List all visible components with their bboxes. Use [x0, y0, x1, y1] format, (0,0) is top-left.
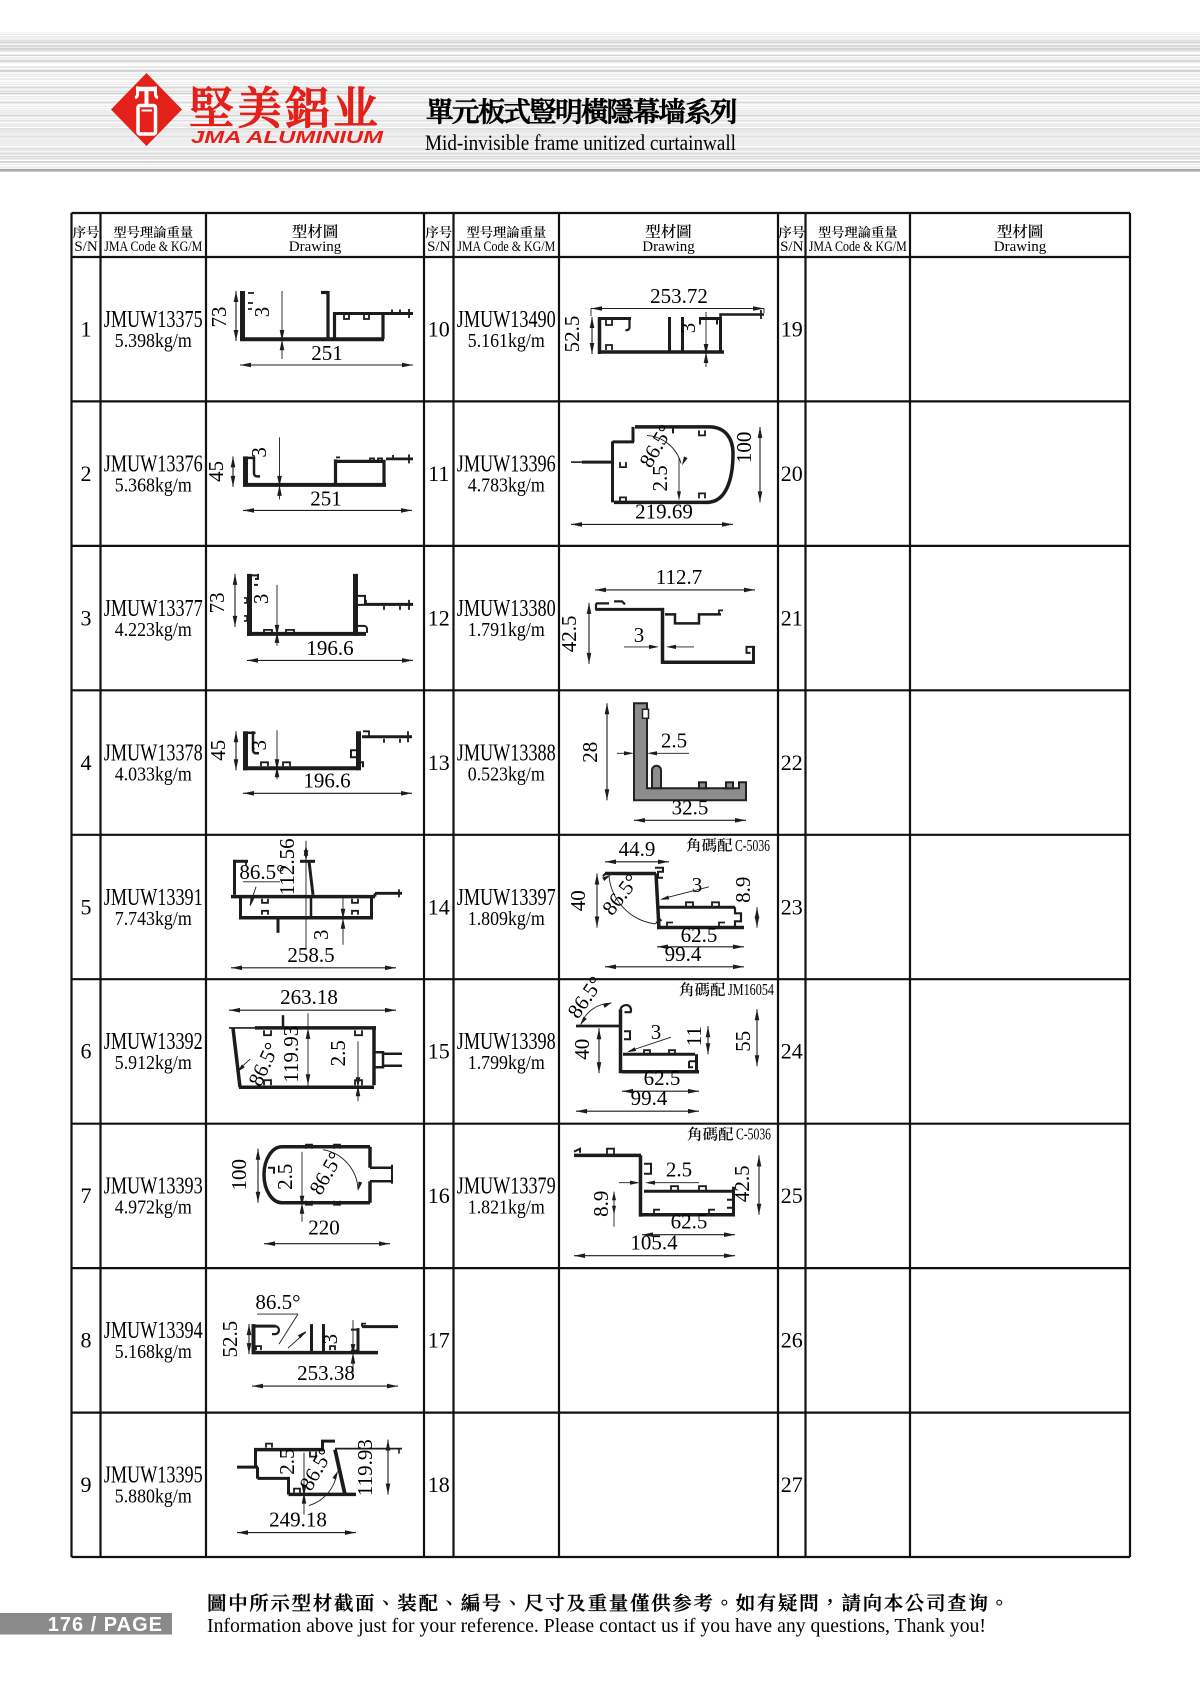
svg-text:13: 13	[428, 750, 450, 775]
svg-text:73: 73	[207, 307, 231, 328]
svg-text:3: 3	[318, 1334, 342, 1345]
svg-text:196.6: 196.6	[306, 636, 353, 660]
svg-text:19: 19	[781, 317, 803, 342]
svg-text:JMUW13388: JMUW13388	[457, 740, 556, 766]
svg-text:176 / PAGE: 176 / PAGE	[48, 1614, 163, 1636]
svg-text:258.5: 258.5	[287, 943, 334, 967]
svg-text:2.5: 2.5	[273, 1164, 297, 1190]
svg-text:251: 251	[311, 341, 343, 365]
svg-text:5.161kg/m: 5.161kg/m	[468, 331, 545, 352]
svg-text:40: 40	[570, 1039, 594, 1060]
svg-text:100: 100	[227, 1159, 251, 1191]
svg-text:C-5036: C-5036	[735, 836, 770, 855]
svg-text:8.9: 8.9	[589, 1191, 613, 1217]
svg-text:249.18: 249.18	[269, 1508, 327, 1532]
svg-text:12: 12	[428, 605, 450, 630]
svg-text:5.168kg/m: 5.168kg/m	[115, 1342, 192, 1363]
svg-text:JMA Code & KG/M: JMA Code & KG/M	[809, 239, 907, 255]
svg-text:8: 8	[81, 1328, 92, 1353]
svg-text:3: 3	[250, 307, 274, 318]
svg-text:6: 6	[81, 1039, 92, 1064]
svg-text:251: 251	[310, 486, 342, 510]
svg-text:3: 3	[247, 740, 271, 751]
svg-text:Drawing: Drawing	[994, 239, 1047, 255]
svg-text:1.791kg/m: 1.791kg/m	[468, 620, 545, 641]
svg-text:25: 25	[781, 1183, 803, 1208]
svg-text:2.5: 2.5	[648, 465, 672, 491]
svg-text:JMUW13396: JMUW13396	[457, 451, 556, 477]
svg-text:21: 21	[781, 605, 803, 630]
svg-text:S/N: S/N	[780, 239, 804, 255]
svg-text:5.398kg/m: 5.398kg/m	[115, 331, 192, 352]
svg-text:55: 55	[731, 1031, 755, 1052]
svg-text:99.4: 99.4	[631, 1086, 668, 1110]
svg-text:1: 1	[81, 317, 92, 342]
svg-text:7.743kg/m: 7.743kg/m	[115, 909, 192, 930]
svg-text:JMUW13490: JMUW13490	[457, 307, 556, 333]
svg-text:18: 18	[428, 1472, 450, 1497]
svg-text:23: 23	[781, 894, 803, 919]
svg-text:JMA ALUMINIUM: JMA ALUMINIUM	[191, 127, 384, 147]
svg-text:24: 24	[781, 1039, 803, 1064]
svg-text:119.93: 119.93	[353, 1439, 377, 1496]
svg-text:JMUW13393: JMUW13393	[104, 1174, 203, 1200]
svg-text:10: 10	[428, 317, 450, 342]
svg-text:JMA Code & KG/M: JMA Code & KG/M	[104, 239, 202, 255]
svg-text:JMUW13397: JMUW13397	[457, 885, 556, 911]
svg-text:42.5: 42.5	[557, 616, 581, 653]
svg-text:2.5: 2.5	[666, 1158, 692, 1182]
svg-text:Drawing: Drawing	[289, 239, 342, 255]
svg-text:32.5: 32.5	[672, 795, 709, 819]
svg-text:5.880kg/m: 5.880kg/m	[115, 1487, 192, 1508]
svg-text:4.223kg/m: 4.223kg/m	[115, 620, 192, 641]
svg-text:1.821kg/m: 1.821kg/m	[468, 1198, 545, 1219]
svg-text:17: 17	[428, 1328, 450, 1353]
svg-text:52.5: 52.5	[218, 1321, 242, 1358]
svg-text:4.972kg/m: 4.972kg/m	[115, 1198, 192, 1219]
svg-text:2.5: 2.5	[326, 1040, 350, 1066]
svg-text:JMUW13378: JMUW13378	[104, 740, 203, 766]
svg-text:4.783kg/m: 4.783kg/m	[468, 475, 545, 496]
svg-text:JMUW13375: JMUW13375	[104, 307, 203, 333]
svg-text:100: 100	[732, 432, 756, 464]
svg-text:JMUW13379: JMUW13379	[457, 1174, 556, 1200]
svg-text:1.799kg/m: 1.799kg/m	[468, 1053, 545, 1074]
svg-text:112.56: 112.56	[275, 838, 299, 895]
svg-text:3: 3	[247, 447, 271, 458]
svg-text:JMA Code & KG/M: JMA Code & KG/M	[457, 239, 555, 255]
svg-text:1.809kg/m: 1.809kg/m	[468, 909, 545, 930]
svg-text:JMUW13392: JMUW13392	[104, 1029, 203, 1055]
svg-text:3: 3	[309, 930, 333, 941]
svg-text:JMUW13394: JMUW13394	[104, 1318, 203, 1344]
svg-text:3: 3	[249, 594, 273, 605]
svg-text:3: 3	[692, 873, 703, 897]
svg-text:JMUW13380: JMUW13380	[457, 596, 556, 622]
svg-text:JMUW13391: JMUW13391	[104, 885, 203, 911]
svg-text:2.5: 2.5	[661, 728, 687, 752]
svg-text:112.7: 112.7	[656, 565, 702, 589]
svg-text:3: 3	[634, 623, 645, 647]
svg-text:JMUW13395: JMUW13395	[104, 1463, 203, 1489]
svg-text:JM16054: JM16054	[728, 980, 774, 999]
svg-text:Information above just for you: Information above just for your referenc…	[207, 1615, 986, 1637]
svg-text:4: 4	[81, 750, 92, 775]
svg-text:8.9: 8.9	[731, 877, 755, 903]
svg-text:5: 5	[81, 894, 92, 919]
svg-text:0.523kg/m: 0.523kg/m	[468, 764, 545, 785]
svg-text:2: 2	[81, 461, 92, 486]
svg-text:14: 14	[428, 894, 450, 919]
svg-text:3: 3	[676, 323, 700, 334]
svg-text:JMUW13376: JMUW13376	[104, 451, 203, 477]
svg-text:42.5: 42.5	[730, 1165, 754, 1202]
svg-text:220: 220	[308, 1216, 340, 1240]
svg-text:JMUW13398: JMUW13398	[457, 1029, 556, 1055]
svg-text:11: 11	[428, 461, 449, 486]
svg-text:C-5036: C-5036	[736, 1125, 771, 1144]
svg-text:253.38: 253.38	[297, 1361, 355, 1385]
svg-text:2.5: 2.5	[275, 1448, 299, 1474]
svg-text:11: 11	[682, 1026, 706, 1046]
svg-text:45: 45	[204, 461, 228, 482]
svg-text:196.6: 196.6	[303, 768, 350, 792]
svg-text:5.912kg/m: 5.912kg/m	[115, 1053, 192, 1074]
svg-text:15: 15	[428, 1039, 450, 1064]
svg-text:26: 26	[781, 1328, 803, 1353]
svg-text:28: 28	[578, 742, 602, 763]
svg-text:JMUW13377: JMUW13377	[104, 596, 203, 622]
svg-text:4.033kg/m: 4.033kg/m	[115, 764, 192, 785]
svg-text:3: 3	[81, 605, 92, 630]
svg-text:Drawing: Drawing	[642, 239, 695, 255]
svg-text:86.5°: 86.5°	[255, 1290, 300, 1314]
svg-text:219.69: 219.69	[635, 499, 693, 523]
svg-text:27: 27	[781, 1472, 803, 1497]
svg-text:22: 22	[781, 750, 803, 775]
svg-text:7: 7	[81, 1183, 92, 1208]
svg-text:S/N: S/N	[74, 239, 98, 255]
svg-text:119.93: 119.93	[279, 1026, 303, 1083]
svg-text:20: 20	[781, 461, 803, 486]
svg-text:Mid-invisible frame unitized c: Mid-invisible frame unitized curtainwall	[425, 130, 736, 155]
svg-text:16: 16	[428, 1183, 450, 1208]
svg-text:S/N: S/N	[427, 239, 451, 255]
svg-text:73: 73	[205, 592, 229, 613]
svg-text:99.4: 99.4	[665, 942, 702, 966]
svg-text:105.4: 105.4	[630, 1231, 678, 1255]
svg-text:263.18: 263.18	[280, 985, 338, 1009]
svg-text:9: 9	[81, 1472, 92, 1497]
svg-text:253.72: 253.72	[650, 284, 708, 308]
svg-text:45: 45	[206, 740, 230, 761]
svg-text:44.9: 44.9	[619, 837, 656, 861]
svg-text:40: 40	[566, 890, 590, 911]
svg-text:5.368kg/m: 5.368kg/m	[115, 475, 192, 496]
svg-text:52.5: 52.5	[560, 316, 584, 353]
